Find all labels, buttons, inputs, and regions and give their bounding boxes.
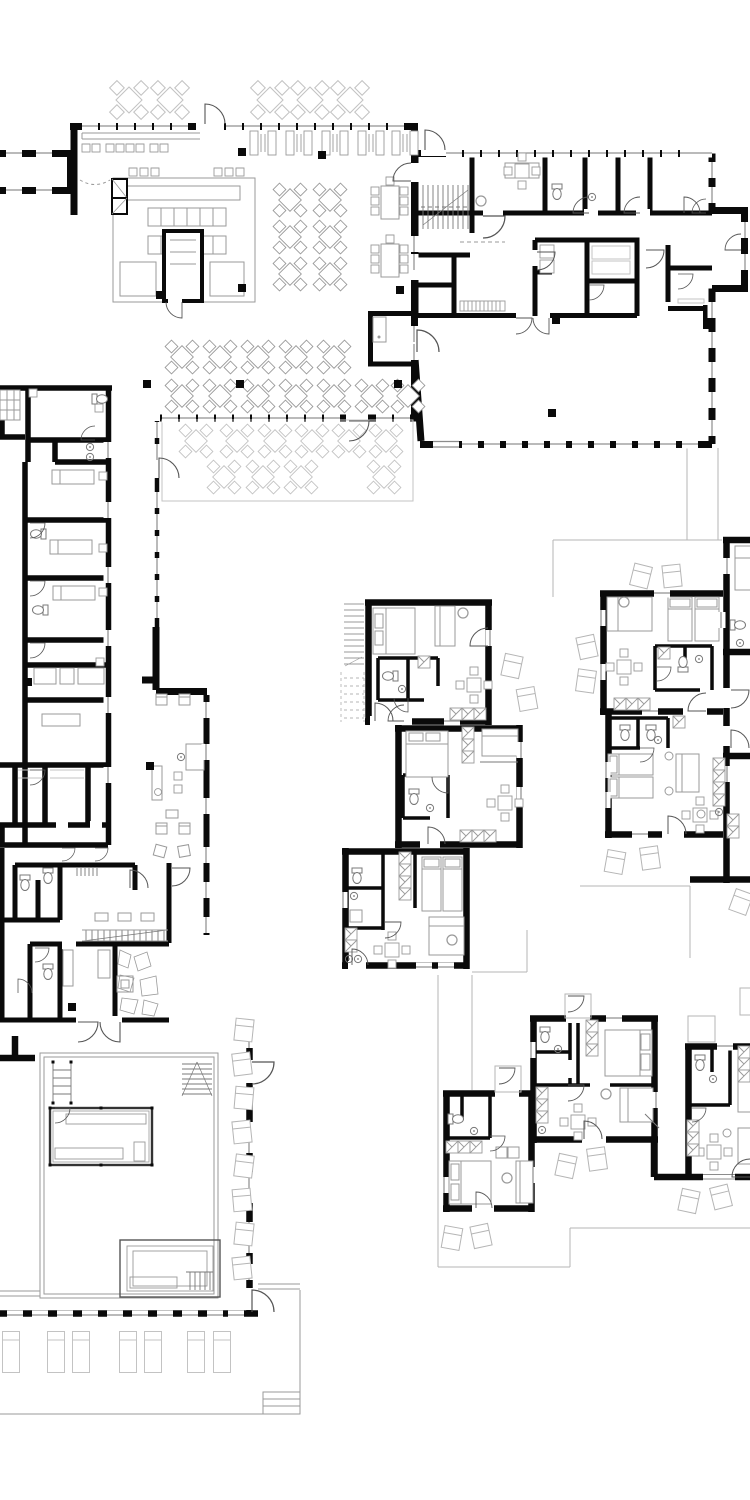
cottage-e-furniture [608,754,699,798]
locker-bench [460,242,505,311]
cottage-g-furniture [449,1147,533,1204]
cottage-g-entry-gap [472,1204,494,1213]
lap-pool [49,1107,154,1167]
edge-structure [740,988,750,1015]
cottage-a-furniture [373,606,455,654]
cottage-f-entry-gap [582,1135,606,1144]
long-tables [381,186,399,277]
pool-ramp [52,1061,73,1105]
spa-door-gap [62,940,76,949]
cottage-east-door-gap2 [722,726,731,746]
sun-loungers [3,1332,231,1373]
corridor-door-gap [152,458,161,478]
cottage-g [443,1066,535,1213]
spa-stairs [77,868,168,941]
sauna-door-gap [56,821,68,829]
cottage-east-door-gap [722,688,731,708]
bar-counter [80,133,200,185]
pool-doors-gap [76,1016,122,1025]
west-door-gap [411,163,420,182]
suite-walls [531,240,637,316]
reception-lounge [152,694,207,935]
cottage-g-vest-gap [495,1089,519,1098]
plunge-pool [120,1240,220,1297]
cottage-h-vestibule [688,1016,715,1042]
dining-tables-outdoor [110,81,370,120]
cottage-d-furniture [607,597,719,641]
booth-seating [250,131,418,155]
deck-stairs [182,1062,212,1096]
cottage-b-entry-gap [420,840,440,849]
floor-plan-drawing [0,0,750,1500]
floor-plan-page [0,0,750,1500]
wing-treatments [0,388,112,845]
stairs-main [421,185,470,229]
wing-furniture [0,390,104,778]
site-boundaries [438,448,750,1267]
wing-walls [0,388,112,845]
cottage-e-entry-gap [662,830,684,839]
restaurant-entry-gap [196,121,224,131]
cottage-g-vestibule [495,1066,521,1092]
hall-south-entry [433,439,459,450]
building-event-hall [411,146,748,450]
restaurant-walls [0,123,418,421]
cold-room [164,231,202,305]
service-elevators [112,179,127,214]
dining-tables-terrace [179,424,403,494]
sauna-door-gap2 [90,821,102,829]
cottage-d-entry-gap [683,707,707,716]
service-niche [368,313,414,364]
corridor-glass [142,421,207,692]
pool-east-door-gap2 [245,1288,254,1310]
cottage-a-ext-stair [341,604,364,722]
cottage-h-entry-sill [703,1175,735,1180]
cottage-a [341,603,492,727]
pool-deck [0,1053,218,1298]
cottage-f-furniture [605,1030,659,1128]
hall-partitions [412,157,712,316]
